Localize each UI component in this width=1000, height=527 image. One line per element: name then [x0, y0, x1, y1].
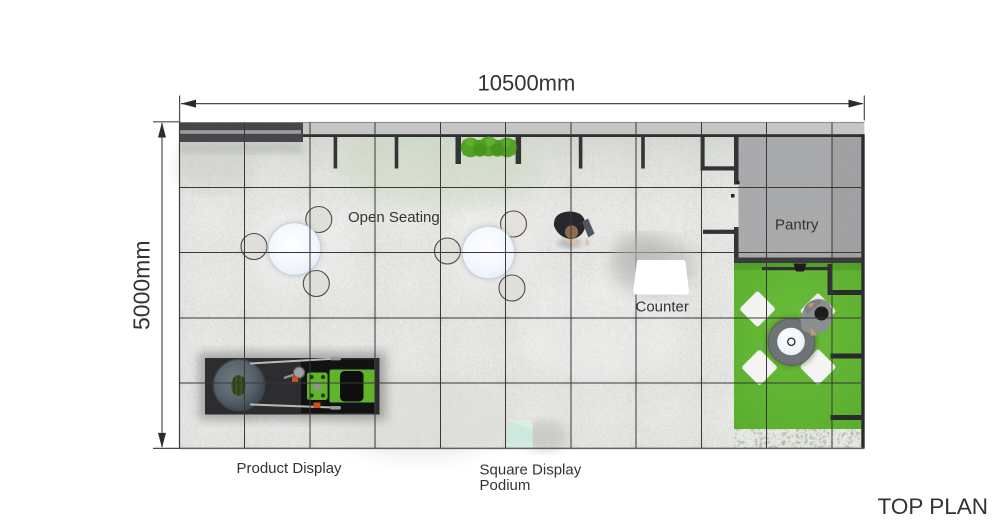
svg-text:10500mm: 10500mm [478, 71, 576, 96]
svg-text:TOP PLAN: TOP PLAN [878, 494, 988, 519]
svg-text:Open Seating: Open Seating [348, 209, 440, 226]
svg-text:Pantry: Pantry [775, 217, 819, 234]
svg-text:Counter: Counter [636, 299, 689, 316]
svg-text:5000mm: 5000mm [129, 241, 155, 330]
svg-text:Square Display: Square Display [480, 462, 582, 479]
svg-text:Podium: Podium [480, 477, 531, 494]
svg-text:Product Display: Product Display [237, 460, 343, 477]
